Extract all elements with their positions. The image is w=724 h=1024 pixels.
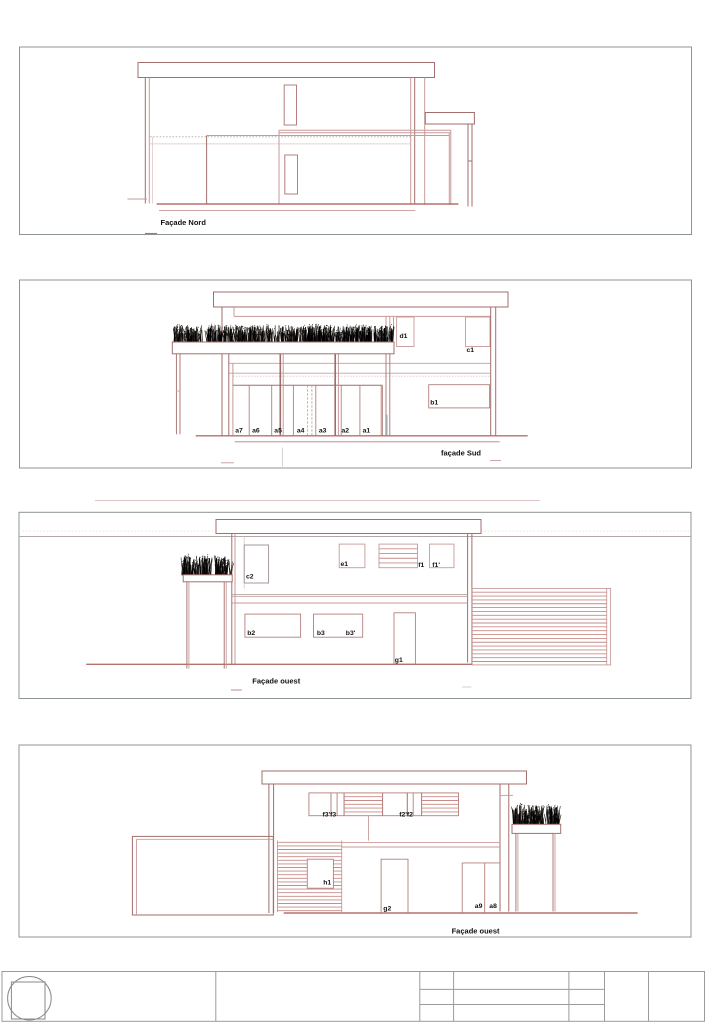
svg-text:f1: f1 bbox=[418, 562, 424, 569]
svg-text:c1: c1 bbox=[467, 347, 475, 354]
svg-text:b3': b3' bbox=[346, 630, 356, 637]
svg-text:a4: a4 bbox=[297, 428, 305, 435]
svg-text:Façade ouest: Façade ouest bbox=[452, 927, 500, 936]
svg-text:h1: h1 bbox=[323, 879, 331, 886]
svg-text:f2'f2: f2'f2 bbox=[399, 811, 413, 818]
svg-text:g2: g2 bbox=[383, 905, 391, 912]
svg-text:b2: b2 bbox=[247, 630, 255, 637]
svg-text:a7: a7 bbox=[235, 428, 243, 435]
svg-text:f1': f1' bbox=[432, 562, 440, 569]
svg-text:façade Sud: façade Sud bbox=[441, 448, 481, 457]
svg-text:b1: b1 bbox=[430, 400, 438, 407]
svg-text:d1: d1 bbox=[400, 333, 408, 340]
svg-text:a8: a8 bbox=[489, 903, 497, 910]
svg-text:a2: a2 bbox=[342, 428, 350, 435]
svg-text:Façade Nord: Façade Nord bbox=[161, 218, 207, 227]
svg-text:a3: a3 bbox=[319, 428, 327, 435]
svg-text:a1: a1 bbox=[363, 428, 371, 435]
svg-text:c2: c2 bbox=[246, 574, 254, 581]
svg-text:g1: g1 bbox=[395, 657, 403, 664]
svg-text:a9: a9 bbox=[475, 903, 483, 910]
svg-text:e1: e1 bbox=[341, 561, 349, 568]
svg-text:b3: b3 bbox=[317, 630, 325, 637]
svg-text:a5: a5 bbox=[274, 428, 282, 435]
svg-text:a6: a6 bbox=[252, 428, 260, 435]
svg-text:f3'f3: f3'f3 bbox=[323, 811, 337, 818]
svg-text:Façade ouest: Façade ouest bbox=[252, 677, 300, 686]
